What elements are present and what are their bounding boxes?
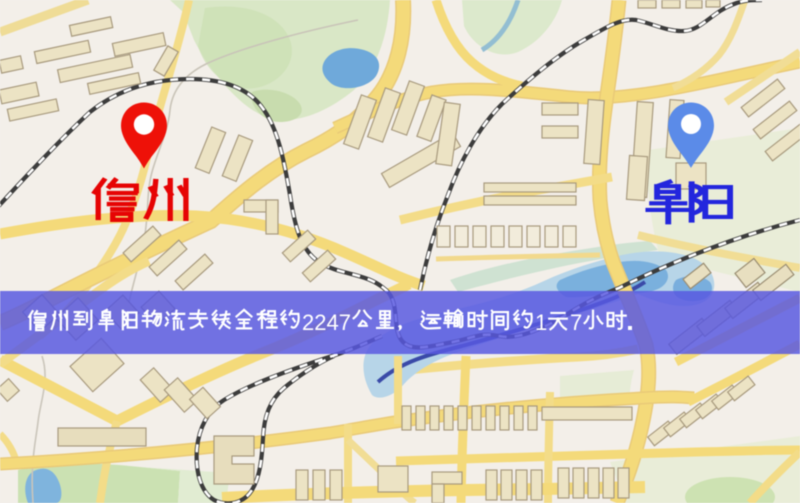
svg-text:7: 7 (570, 310, 582, 335)
svg-text:2247: 2247 (302, 310, 351, 335)
svg-text:1: 1 (535, 310, 547, 335)
